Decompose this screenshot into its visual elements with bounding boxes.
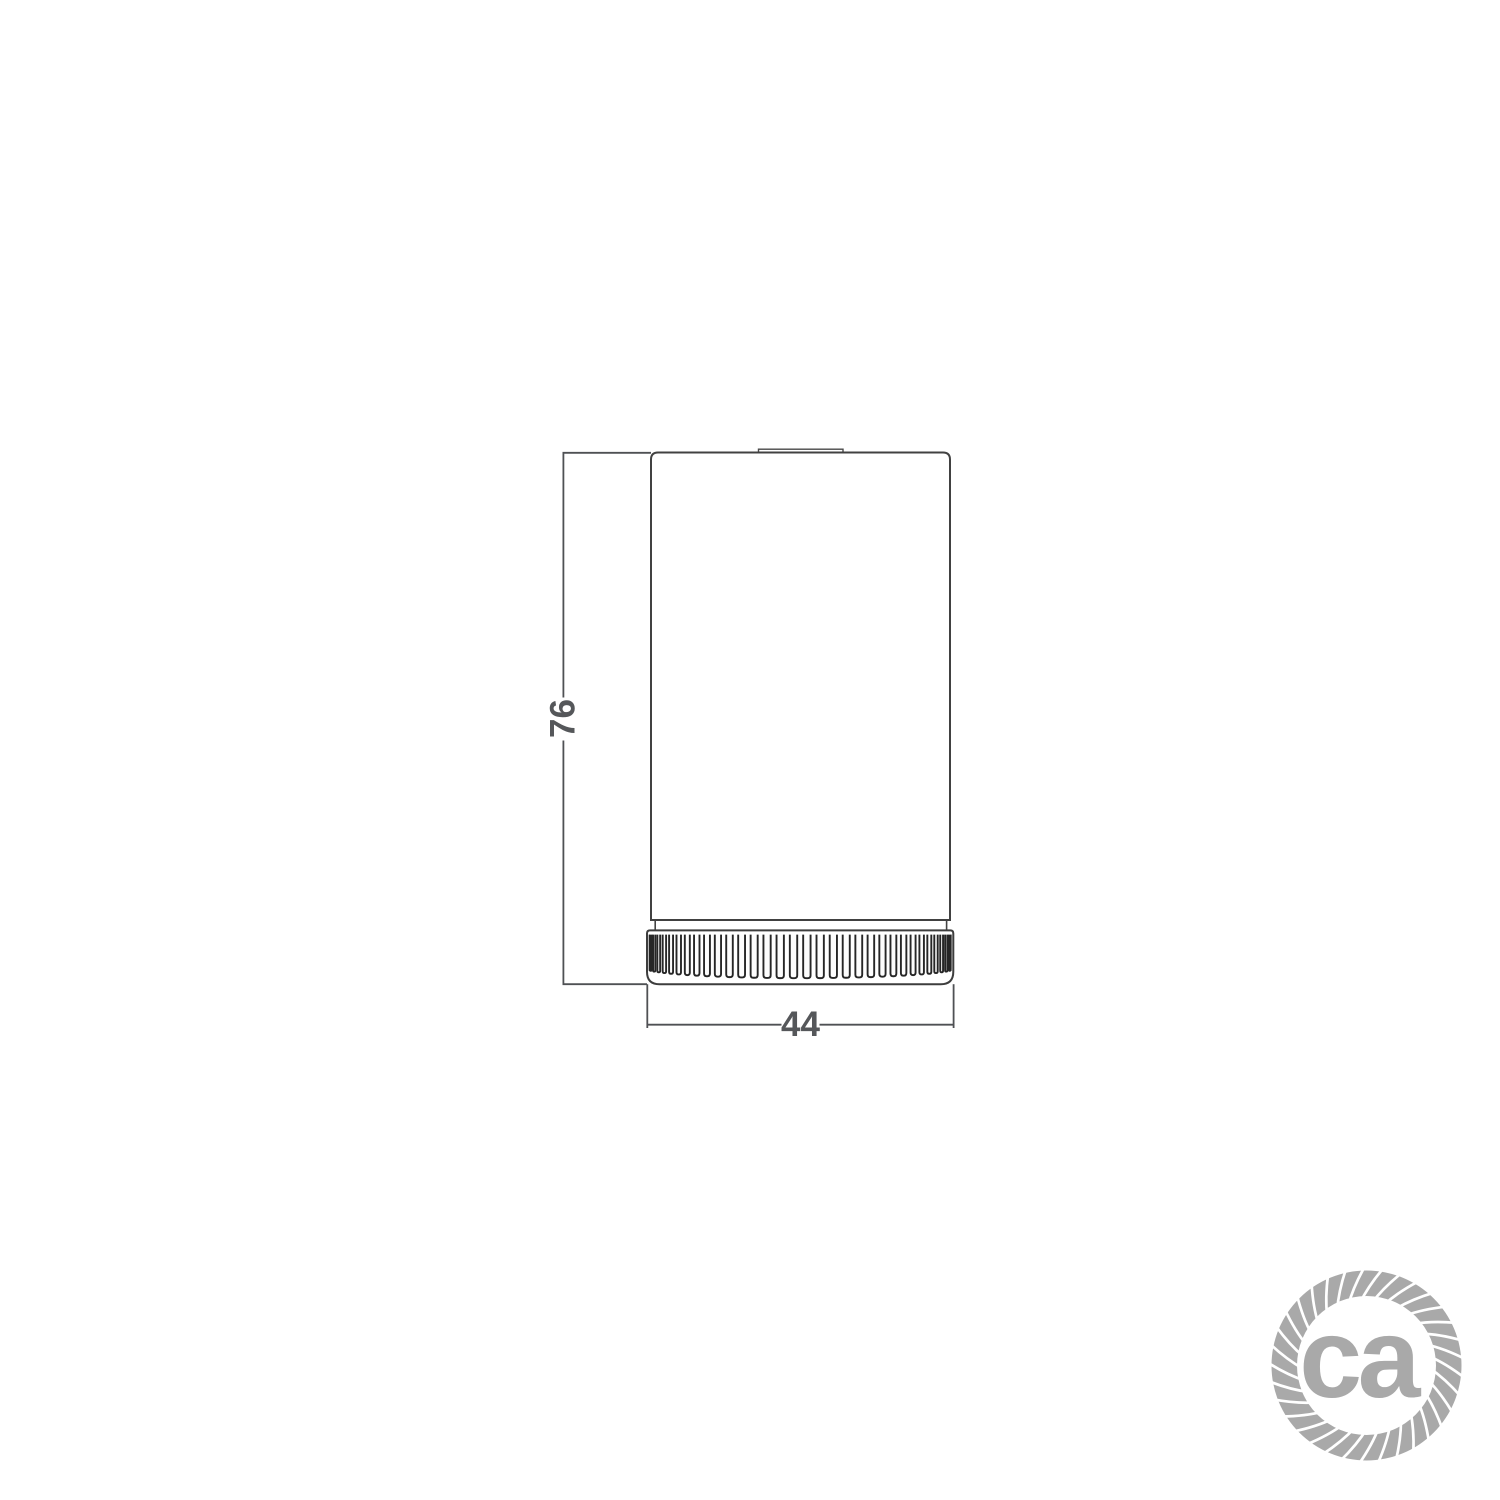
- svg-text:44: 44: [781, 1005, 820, 1044]
- svg-text:76: 76: [543, 699, 582, 738]
- svg-text:ca: ca: [1299, 1295, 1421, 1421]
